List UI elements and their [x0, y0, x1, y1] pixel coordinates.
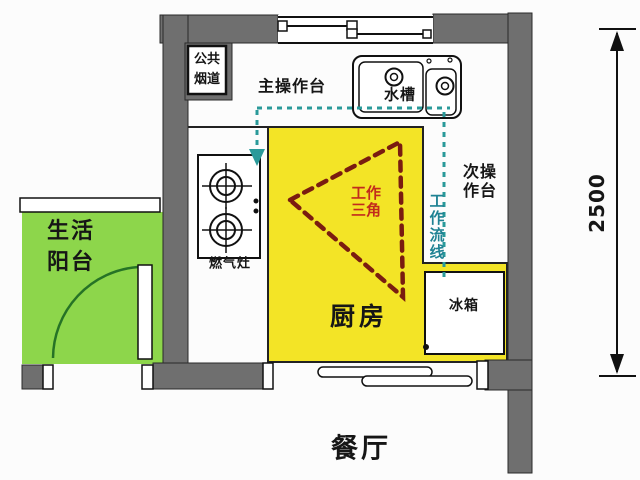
left-wall: [163, 15, 188, 365]
gas-stove-label: 燃气灶: [209, 257, 251, 274]
dimension-arrow-up-icon: [610, 31, 624, 51]
work-flow-label: 工作流线: [429, 193, 444, 261]
window-icon: [278, 15, 433, 43]
work-triangle-label: 工作 三角: [351, 185, 381, 220]
dining-label: 餐厅: [331, 431, 391, 466]
balcony-window-icon: [20, 198, 160, 212]
fridge-label: 冰箱: [449, 297, 479, 315]
dimension-arrow-down-icon: [610, 354, 624, 374]
gas-stove-icon: [198, 155, 260, 258]
main-counter-label: 主操作台: [258, 77, 326, 98]
flue-label: 公共 烟道: [194, 50, 220, 90]
bottom-wall-balcony-block: [22, 365, 43, 389]
balcony-label: 生活 阳台: [47, 217, 95, 279]
bottom-wall-kitchen: [153, 363, 263, 389]
floor-plan: 公共 烟道 主操作台 水槽 次操 作台 燃气灶 冰箱 工作 三角 工作流线 厨房…: [0, 0, 640, 480]
kitchen-label: 厨房: [330, 301, 388, 334]
sliding-door-icon: [318, 367, 472, 386]
right-wall: [508, 13, 532, 473]
secondary-counter-label: 次操 作台: [463, 162, 497, 200]
sink-label: 水槽: [384, 85, 416, 105]
dimension-label: 2500: [584, 173, 610, 233]
floor-plan-drawing: [0, 0, 640, 480]
bottom-wall-corner: [485, 360, 532, 390]
